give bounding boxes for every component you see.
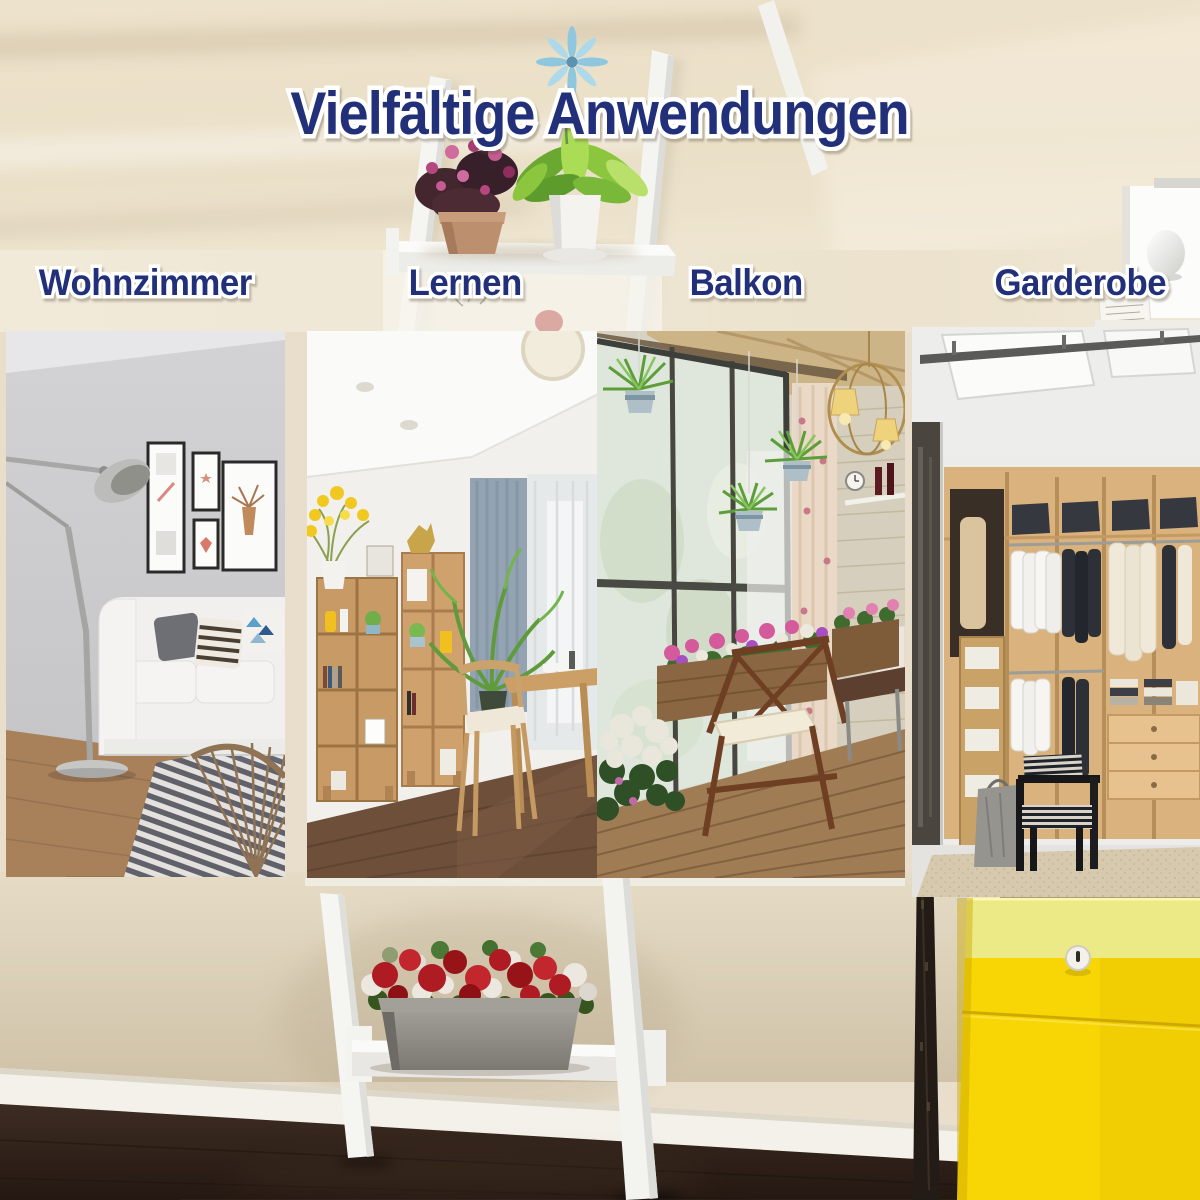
label-text: Balkon [689,262,802,303]
wine-bottle [887,463,894,495]
label-text: Wohnzimmer [38,262,251,303]
mirror-panel [912,422,943,852]
wine-bottle [875,467,882,495]
white-sofa [99,597,285,755]
folded-stacks [1110,679,1198,705]
label-text: Garderobe [994,262,1166,303]
white-shirts [1011,551,1061,633]
dark-suits [1062,549,1101,643]
tan-garment [960,517,986,629]
page-title: Vielfältige Anwendungen Vielfältige Anwe… [0,82,1200,145]
ceiling-lamp [523,331,583,379]
section-label-garderobe: Garderobe Garderobe [880,264,1200,303]
gray-planter [382,1012,578,1070]
photo-lernen [307,331,597,878]
drawer-unit [1108,715,1200,799]
striped-pillow [194,617,245,670]
floral-curtain [792,383,837,763]
geometric-pillow [242,609,284,651]
gray-bag [974,780,1020,867]
photo-wohnzimmer [6,331,285,877]
photo-garderobe [912,327,1200,897]
photo-frame [367,546,393,576]
photo-balkon [597,331,905,878]
skylight-ceiling [912,327,1200,457]
product-marketing-image: Vielfältige Anwendungen Vielfältige Anwe… [0,0,1200,1200]
yellow-cabinet [955,862,1200,1200]
gallery-frames [148,443,276,572]
label-text: Lernen [408,262,521,303]
white-shirts-row2 [1011,679,1050,755]
title-text: Vielfältige Anwendungen [291,80,909,147]
white-panel-corner [1095,178,1200,333]
